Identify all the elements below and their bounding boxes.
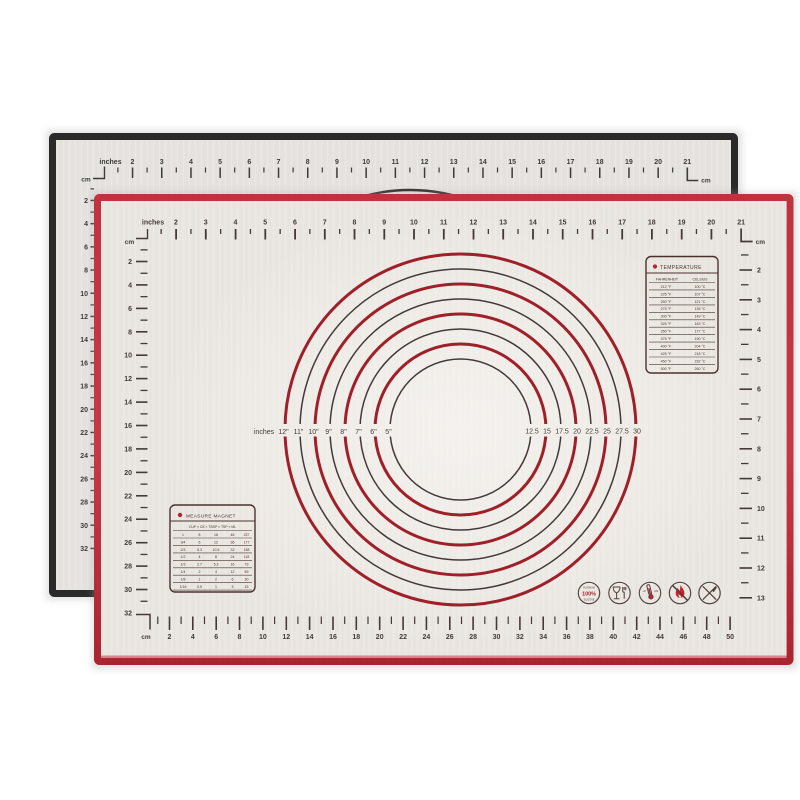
svg-text:232 °C: 232 °C xyxy=(694,359,705,363)
svg-text:2: 2 xyxy=(757,268,761,275)
svg-text:22: 22 xyxy=(80,430,88,437)
svg-text:163 °C: 163 °C xyxy=(694,322,705,326)
svg-text:177: 177 xyxy=(244,540,250,544)
svg-text:3/4: 3/4 xyxy=(181,540,186,544)
svg-text:325 °F: 325 °F xyxy=(661,322,672,326)
svg-text:15: 15 xyxy=(543,429,551,436)
svg-text:8: 8 xyxy=(215,555,217,559)
svg-text:12: 12 xyxy=(421,159,429,166)
svg-text:118: 118 xyxy=(244,555,250,559)
svg-text:inches: inches xyxy=(142,220,164,227)
svg-text:30: 30 xyxy=(124,587,132,594)
svg-text:12: 12 xyxy=(80,314,88,321)
svg-text:3: 3 xyxy=(160,159,164,166)
svg-text:4: 4 xyxy=(234,220,238,227)
svg-text:18: 18 xyxy=(80,384,88,391)
svg-text:500 °F: 500 °F xyxy=(661,367,672,371)
svg-text:8: 8 xyxy=(199,533,201,537)
svg-text:230: 230 xyxy=(654,590,659,593)
svg-text:4: 4 xyxy=(191,634,195,641)
svg-text:6: 6 xyxy=(757,387,761,394)
svg-text:1/3: 1/3 xyxy=(181,563,186,567)
svg-text:13: 13 xyxy=(450,159,458,166)
svg-text:21: 21 xyxy=(737,220,745,227)
svg-text:11: 11 xyxy=(392,159,400,166)
svg-text:2: 2 xyxy=(84,198,88,205)
svg-text:1/2: 1/2 xyxy=(181,555,186,559)
svg-text:40: 40 xyxy=(609,634,617,641)
svg-text:13: 13 xyxy=(757,595,765,602)
svg-text:21: 21 xyxy=(683,159,691,166)
svg-text:204 °C: 204 °C xyxy=(694,345,705,349)
svg-text:1: 1 xyxy=(182,533,184,537)
svg-text:16: 16 xyxy=(214,533,218,537)
svg-text:6: 6 xyxy=(232,578,234,582)
svg-text:9: 9 xyxy=(335,159,339,166)
svg-text:59: 59 xyxy=(245,570,249,574)
svg-text:cm: cm xyxy=(81,177,91,184)
svg-text:28: 28 xyxy=(124,564,132,571)
svg-text:30: 30 xyxy=(245,578,249,582)
svg-text:16: 16 xyxy=(537,159,545,166)
svg-text:19: 19 xyxy=(678,220,686,227)
svg-text:42: 42 xyxy=(633,634,641,641)
svg-text:cm: cm xyxy=(141,634,151,641)
svg-text:18: 18 xyxy=(124,446,132,453)
svg-text:10: 10 xyxy=(362,159,370,166)
svg-text:17: 17 xyxy=(567,159,575,166)
svg-text:22: 22 xyxy=(399,634,407,641)
svg-text:28: 28 xyxy=(80,500,88,507)
svg-text:inches: inches xyxy=(99,159,121,166)
svg-text:4: 4 xyxy=(199,555,201,559)
svg-text:7: 7 xyxy=(757,417,761,424)
svg-text:15: 15 xyxy=(559,220,567,227)
svg-text:10: 10 xyxy=(80,291,88,298)
svg-text:24: 24 xyxy=(124,517,132,524)
svg-text:7": 7" xyxy=(355,429,362,436)
svg-text:14: 14 xyxy=(80,337,88,344)
svg-text:32: 32 xyxy=(516,634,524,641)
svg-text:14: 14 xyxy=(124,400,132,407)
svg-text:300 °F: 300 °F xyxy=(661,315,672,319)
svg-text:34: 34 xyxy=(539,634,547,641)
svg-text:38: 38 xyxy=(586,634,594,641)
svg-text:158: 158 xyxy=(244,548,250,552)
svg-text:30: 30 xyxy=(493,634,501,641)
svg-text:MEASURE MAGNET: MEASURE MAGNET xyxy=(186,514,236,520)
svg-text:16: 16 xyxy=(124,423,132,430)
svg-text:4: 4 xyxy=(128,282,132,289)
svg-text:32: 32 xyxy=(124,611,132,618)
svg-text:107 °C: 107 °C xyxy=(694,292,705,296)
svg-text:32: 32 xyxy=(80,546,88,553)
svg-text:9: 9 xyxy=(757,476,761,483)
svg-text:2: 2 xyxy=(131,159,135,166)
svg-text:10: 10 xyxy=(757,506,765,513)
svg-text:36: 36 xyxy=(231,540,235,544)
svg-text:50: 50 xyxy=(726,634,734,641)
svg-text:8: 8 xyxy=(128,329,132,336)
svg-text:0.5: 0.5 xyxy=(197,585,202,589)
svg-text:8: 8 xyxy=(238,634,242,641)
svg-text:20: 20 xyxy=(573,429,581,436)
svg-text:48: 48 xyxy=(231,533,235,537)
svg-text:19: 19 xyxy=(625,159,633,166)
svg-text:8: 8 xyxy=(352,220,356,227)
svg-text:11: 11 xyxy=(757,536,765,543)
svg-text:11": 11" xyxy=(294,429,304,436)
svg-text:2: 2 xyxy=(168,634,172,641)
svg-text:6: 6 xyxy=(293,220,297,227)
svg-text:1/16: 1/16 xyxy=(180,585,187,589)
svg-text:24: 24 xyxy=(231,555,235,559)
svg-text:36: 36 xyxy=(563,634,571,641)
svg-text:20: 20 xyxy=(654,159,662,166)
svg-text:cm: cm xyxy=(701,178,711,185)
svg-text:1: 1 xyxy=(199,578,201,582)
svg-text:100%: 100% xyxy=(582,591,596,597)
svg-text:44: 44 xyxy=(656,634,664,641)
svg-text:3: 3 xyxy=(204,220,208,227)
svg-text:11: 11 xyxy=(440,220,448,227)
svg-text:177 °C: 177 °C xyxy=(694,330,705,334)
svg-text:TEMPERATURE: TEMPERATURE xyxy=(660,265,702,271)
svg-text:10.6: 10.6 xyxy=(213,548,220,552)
svg-text:13: 13 xyxy=(499,220,507,227)
svg-text:6": 6" xyxy=(370,429,377,436)
svg-text:46: 46 xyxy=(680,634,688,641)
svg-text:10: 10 xyxy=(259,634,267,641)
svg-text:24: 24 xyxy=(80,453,88,460)
svg-text:5.3: 5.3 xyxy=(214,563,219,567)
svg-text:12: 12 xyxy=(282,634,290,641)
svg-text:5: 5 xyxy=(218,159,222,166)
svg-text:4: 4 xyxy=(757,327,761,334)
svg-text:250 °F: 250 °F xyxy=(661,300,672,304)
svg-text:22: 22 xyxy=(124,493,132,500)
svg-text:121 °C: 121 °C xyxy=(694,300,705,304)
svg-text:30: 30 xyxy=(80,523,88,530)
svg-text:7: 7 xyxy=(323,220,327,227)
svg-text:CELSIUS: CELSIUS xyxy=(693,278,709,282)
svg-text:2: 2 xyxy=(215,578,217,582)
svg-text:375 °F: 375 °F xyxy=(661,337,672,341)
svg-text:26: 26 xyxy=(446,634,454,641)
svg-text:237: 237 xyxy=(244,533,250,537)
svg-text:1/4: 1/4 xyxy=(181,570,186,574)
svg-text:18: 18 xyxy=(352,634,360,641)
svg-text:450 °F: 450 °F xyxy=(661,359,672,363)
svg-text:12: 12 xyxy=(214,540,218,544)
svg-text:6: 6 xyxy=(84,244,88,251)
svg-text:4: 4 xyxy=(215,570,217,574)
svg-text:cm: cm xyxy=(756,239,766,246)
svg-text:28: 28 xyxy=(469,634,477,641)
svg-text:2: 2 xyxy=(199,570,201,574)
svg-text:20: 20 xyxy=(707,220,715,227)
svg-text:14: 14 xyxy=(529,220,537,227)
svg-text:190 °C: 190 °C xyxy=(694,337,705,341)
svg-text:18: 18 xyxy=(596,159,604,166)
svg-text:225 °F: 225 °F xyxy=(661,292,672,296)
svg-text:218 °C: 218 °C xyxy=(694,352,705,356)
svg-text:30: 30 xyxy=(633,429,641,436)
svg-text:260 °C: 260 °C xyxy=(694,367,705,371)
svg-text:350 °F: 350 °F xyxy=(661,330,672,334)
svg-text:25: 25 xyxy=(603,429,611,436)
svg-text:2: 2 xyxy=(174,220,178,227)
svg-text:14: 14 xyxy=(306,634,314,641)
svg-text:12: 12 xyxy=(231,570,235,574)
svg-text:26: 26 xyxy=(80,476,88,483)
svg-text:6: 6 xyxy=(214,634,218,641)
svg-text:26: 26 xyxy=(124,540,132,547)
svg-text:6: 6 xyxy=(128,306,132,313)
svg-text:5.3: 5.3 xyxy=(197,548,202,552)
svg-text:CUP × OZ × TBSP × TSP × ML: CUP × OZ × TBSP × TSP × ML xyxy=(189,525,236,529)
svg-text:15: 15 xyxy=(245,585,249,589)
svg-text:1/8: 1/8 xyxy=(181,578,186,582)
svg-text:14: 14 xyxy=(479,159,487,166)
svg-text:6: 6 xyxy=(247,159,251,166)
svg-text:3: 3 xyxy=(757,297,761,304)
svg-text:16: 16 xyxy=(329,634,337,641)
svg-text:PLATINUM: PLATINUM xyxy=(583,587,595,590)
svg-text:5: 5 xyxy=(757,357,761,364)
svg-text:17: 17 xyxy=(618,220,626,227)
svg-text:5: 5 xyxy=(263,220,267,227)
svg-text:425 °F: 425 °F xyxy=(661,352,672,356)
svg-text:17.5: 17.5 xyxy=(555,429,569,436)
svg-text:10: 10 xyxy=(410,220,418,227)
svg-text:FAHRENHEIT: FAHRENHEIT xyxy=(656,278,679,282)
svg-text:4: 4 xyxy=(84,221,88,228)
svg-text:20: 20 xyxy=(80,407,88,414)
svg-text:8": 8" xyxy=(340,429,347,436)
svg-text:8: 8 xyxy=(757,446,761,453)
svg-text:135 °C: 135 °C xyxy=(694,307,705,311)
svg-text:10: 10 xyxy=(124,353,132,360)
svg-text:100 °C: 100 °C xyxy=(694,285,705,289)
svg-text:16: 16 xyxy=(231,563,235,567)
svg-text:1: 1 xyxy=(215,585,217,589)
svg-text:12: 12 xyxy=(124,376,132,383)
svg-text:79: 79 xyxy=(245,563,249,567)
svg-text:400 °F: 400 °F xyxy=(661,345,672,349)
svg-text:212 °F: 212 °F xyxy=(661,285,672,289)
svg-text:12: 12 xyxy=(470,220,478,227)
svg-text:48: 48 xyxy=(703,634,711,641)
svg-text:2.7: 2.7 xyxy=(197,563,202,567)
svg-text:15: 15 xyxy=(508,159,516,166)
svg-text:9": 9" xyxy=(325,429,332,436)
svg-text:18: 18 xyxy=(648,220,656,227)
svg-text:7: 7 xyxy=(277,159,281,166)
svg-text:2/3: 2/3 xyxy=(181,548,186,552)
svg-text:4: 4 xyxy=(189,159,193,166)
svg-text:SILICONE: SILICONE xyxy=(584,600,595,602)
svg-text:12: 12 xyxy=(757,566,765,573)
svg-text:20: 20 xyxy=(376,634,384,641)
svg-text:16: 16 xyxy=(589,220,597,227)
svg-text:27.5: 27.5 xyxy=(615,429,629,436)
svg-text:32: 32 xyxy=(231,548,235,552)
svg-text:24: 24 xyxy=(423,634,431,641)
svg-text:8: 8 xyxy=(84,268,88,275)
svg-text:12": 12" xyxy=(278,429,289,436)
svg-text:3: 3 xyxy=(232,585,234,589)
svg-text:6: 6 xyxy=(199,540,201,544)
svg-text:12.5: 12.5 xyxy=(525,429,539,436)
svg-text:10": 10" xyxy=(308,429,319,436)
svg-text:22.5: 22.5 xyxy=(585,429,599,436)
svg-text:5": 5" xyxy=(385,429,392,436)
svg-text:2: 2 xyxy=(128,259,132,266)
svg-text:275 °F: 275 °F xyxy=(661,307,672,311)
svg-text:inches: inches xyxy=(254,429,275,436)
svg-text:9: 9 xyxy=(382,220,386,227)
svg-text:20: 20 xyxy=(124,470,132,477)
svg-text:cm: cm xyxy=(125,239,135,246)
svg-text:149 °C: 149 °C xyxy=(694,315,705,319)
svg-text:16: 16 xyxy=(80,360,88,367)
svg-text:8: 8 xyxy=(306,159,310,166)
